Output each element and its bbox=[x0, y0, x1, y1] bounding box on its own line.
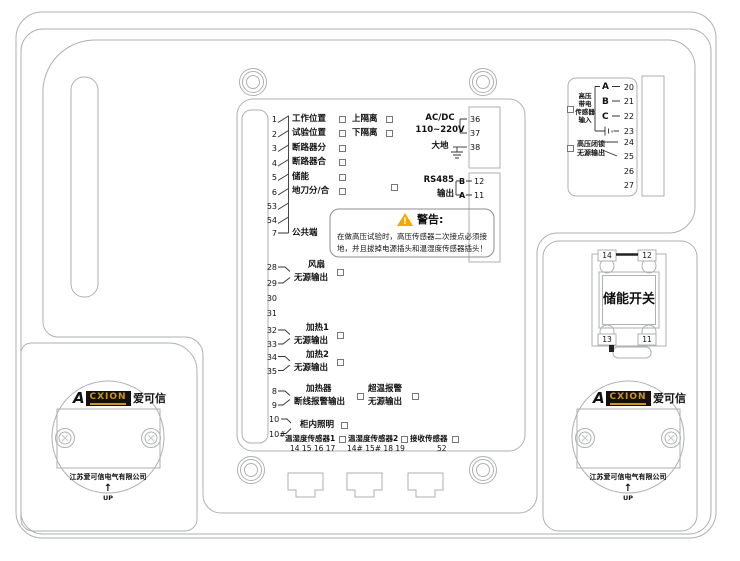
indicator-box bbox=[339, 116, 346, 123]
terminal-no: 54 bbox=[267, 216, 277, 225]
terminal-no-group: 14 15 16 17 bbox=[290, 445, 335, 454]
terminal-no: 5 bbox=[272, 173, 277, 182]
terminal-no-group: 52 bbox=[437, 445, 447, 454]
switch-terminal-no: 14 bbox=[602, 252, 612, 261]
input-label: 断路器分 bbox=[292, 144, 326, 154]
rs485-a: A bbox=[459, 191, 465, 200]
output-label: 加热2 bbox=[306, 351, 329, 361]
terminal-no: 23 bbox=[624, 127, 634, 136]
wiring-lines bbox=[278, 87, 620, 434]
input-label: 工作位置 bbox=[292, 115, 326, 125]
terminal-no: 34 bbox=[267, 353, 277, 362]
terminal-no: 33 bbox=[267, 340, 277, 349]
indicator-box bbox=[339, 130, 346, 137]
terminal-no-group: 14# 15# 18 19 bbox=[347, 445, 405, 454]
terminal-no: 8 bbox=[272, 387, 277, 396]
terminal-no: 3 bbox=[272, 144, 277, 153]
brand-a-letter: A bbox=[593, 390, 605, 407]
terminal-no: 32 bbox=[267, 326, 277, 335]
terminal-no: 30 bbox=[267, 294, 277, 303]
output-label: 加热器 bbox=[306, 385, 332, 395]
terminal-no: 2 bbox=[272, 130, 277, 139]
output-label: 超温报警 bbox=[368, 385, 402, 395]
terminal-no: 10# bbox=[269, 430, 286, 439]
phase-letter: C bbox=[602, 112, 609, 122]
common-terminal-label: 公共端 bbox=[292, 229, 318, 239]
hv-input-label: 输入 bbox=[579, 117, 592, 124]
terminal-no: 6 bbox=[272, 188, 277, 197]
indicator-box bbox=[386, 116, 393, 123]
company-name: 江苏爱可信电气有限公司 bbox=[590, 473, 667, 481]
terminal-no: 12 bbox=[474, 177, 484, 186]
brand-cn: 爱可信 bbox=[133, 393, 166, 406]
rs485-label: RS485 bbox=[424, 176, 454, 186]
indicator-box bbox=[339, 188, 346, 195]
indicator-box bbox=[567, 145, 574, 152]
power-label: AC/DC bbox=[425, 114, 454, 124]
terminal-no: 4 bbox=[272, 159, 277, 168]
right-strip bbox=[642, 76, 664, 196]
input-label: 断路器合 bbox=[292, 158, 326, 168]
switch-terminal-no: 12 bbox=[642, 252, 652, 261]
up-label: UP bbox=[623, 495, 633, 502]
terminal-no: 36 bbox=[470, 115, 480, 124]
indicator-box bbox=[337, 269, 344, 276]
switch-terminal-no: 13 bbox=[602, 336, 612, 345]
output-label: 柜内照明 bbox=[300, 421, 334, 431]
up-arrow-icon: ↑ bbox=[104, 483, 112, 495]
hv-interlock-label: 高压闭锁 bbox=[577, 140, 605, 148]
connector-jacks bbox=[288, 473, 443, 497]
phase-letter: B bbox=[602, 97, 609, 107]
input-label-2: 上隔离 bbox=[352, 115, 378, 125]
output-label: 无源输出 bbox=[294, 337, 328, 347]
up-arrow-icon: ↑ bbox=[624, 483, 632, 495]
indicator-box bbox=[337, 359, 344, 366]
up-label: UP bbox=[103, 495, 113, 502]
indicator-box bbox=[567, 106, 574, 113]
terminal-no: 38 bbox=[470, 143, 480, 152]
sensor-label: 接收传感器 bbox=[410, 435, 448, 444]
input-label: 地刀分/合 bbox=[292, 187, 329, 197]
sensor-panel-left bbox=[21, 343, 197, 531]
terminal-no: 11 bbox=[474, 191, 484, 200]
indicator-box bbox=[337, 332, 344, 339]
terminal-no: 37 bbox=[470, 129, 480, 138]
indicator-box bbox=[412, 393, 419, 400]
indicator-box bbox=[452, 436, 459, 443]
terminal-no: 35 bbox=[267, 367, 277, 376]
output-label: 无源输出 bbox=[294, 364, 328, 374]
terminal-no: 7 bbox=[272, 229, 277, 238]
indicator-box bbox=[357, 393, 364, 400]
input-label: 储能 bbox=[292, 173, 309, 183]
brand-logo-rule bbox=[90, 403, 126, 405]
brand-logo-rule bbox=[610, 403, 646, 405]
terminal-no: 1 bbox=[272, 115, 277, 124]
terminal-no: 29 bbox=[267, 279, 277, 288]
hv-interlock-label: 无源输出 bbox=[577, 149, 605, 157]
rs485-output-label: 输出 bbox=[437, 190, 454, 200]
power-voltage: 110~220V bbox=[415, 126, 464, 136]
output-label: 风扇 bbox=[308, 261, 325, 271]
indicator-box bbox=[386, 130, 393, 137]
indicator-box bbox=[339, 436, 346, 443]
output-label: 无源输出 bbox=[368, 398, 402, 408]
sensor-panel-right bbox=[543, 241, 697, 531]
terminal-no: 9 bbox=[272, 401, 277, 410]
warning-text-line1: 在做高压试验时，高压传感器二次接点必须接 bbox=[337, 233, 487, 242]
rs485-b: B bbox=[459, 177, 465, 186]
terminal-no: 20 bbox=[624, 83, 634, 92]
terminal-no: 27 bbox=[624, 181, 634, 190]
terminal-no: 31 bbox=[267, 309, 277, 318]
terminal-no: 22 bbox=[624, 112, 634, 121]
company-name: 江苏爱可信电气有限公司 bbox=[70, 473, 147, 481]
brand-logo-text: CXION bbox=[89, 392, 126, 402]
terminal-no: 26 bbox=[624, 167, 634, 176]
terminal-strip-left bbox=[242, 110, 268, 443]
warning-title: 警告: bbox=[417, 214, 443, 227]
sensor-label: 温湿度传感器2 bbox=[348, 435, 398, 444]
warning-text-line2: 地，并且拔掉电源插头和温湿度传感器插头！ bbox=[337, 245, 487, 254]
switch-terminal-no: 11 bbox=[642, 336, 652, 345]
terminal-no: 28 bbox=[267, 263, 277, 272]
input-label: 试验位置 bbox=[292, 129, 326, 139]
switch-title: 储能开关 bbox=[603, 293, 655, 308]
terminal-no: 25 bbox=[624, 152, 634, 161]
phase-letter: A bbox=[602, 82, 609, 92]
output-label: 无源输出 bbox=[294, 274, 328, 284]
indicator-box bbox=[391, 184, 398, 191]
terminal-no: 10 bbox=[269, 415, 279, 424]
brand-cn: 爱可信 bbox=[653, 393, 686, 406]
warning-icon-mark: ! bbox=[403, 217, 407, 227]
indicator-box bbox=[339, 174, 346, 181]
indicator-box bbox=[401, 436, 408, 443]
input-label-2: 下隔离 bbox=[352, 129, 378, 139]
brand-logo-text: CXION bbox=[609, 392, 646, 402]
earth-label: 大地 bbox=[431, 142, 448, 152]
terminal-no: 53 bbox=[267, 202, 277, 211]
indicator-box bbox=[339, 159, 346, 166]
brand-a-letter: A bbox=[73, 390, 85, 407]
output-label: 加热1 bbox=[306, 324, 329, 334]
faceplate-diagram: 1 2 3 4 5 6 53 54 7 工作位置 试验位置 断路器分 断路器合 … bbox=[0, 0, 740, 561]
indicator-box bbox=[341, 422, 348, 429]
sensor-label: 温湿度传感器1 bbox=[285, 435, 335, 444]
terminal-no: 21 bbox=[624, 97, 634, 106]
vent-slot bbox=[71, 77, 98, 297]
indicator-box bbox=[339, 145, 346, 152]
terminal-no: 24 bbox=[624, 138, 634, 147]
output-label: 断线报警输出 bbox=[294, 398, 345, 408]
